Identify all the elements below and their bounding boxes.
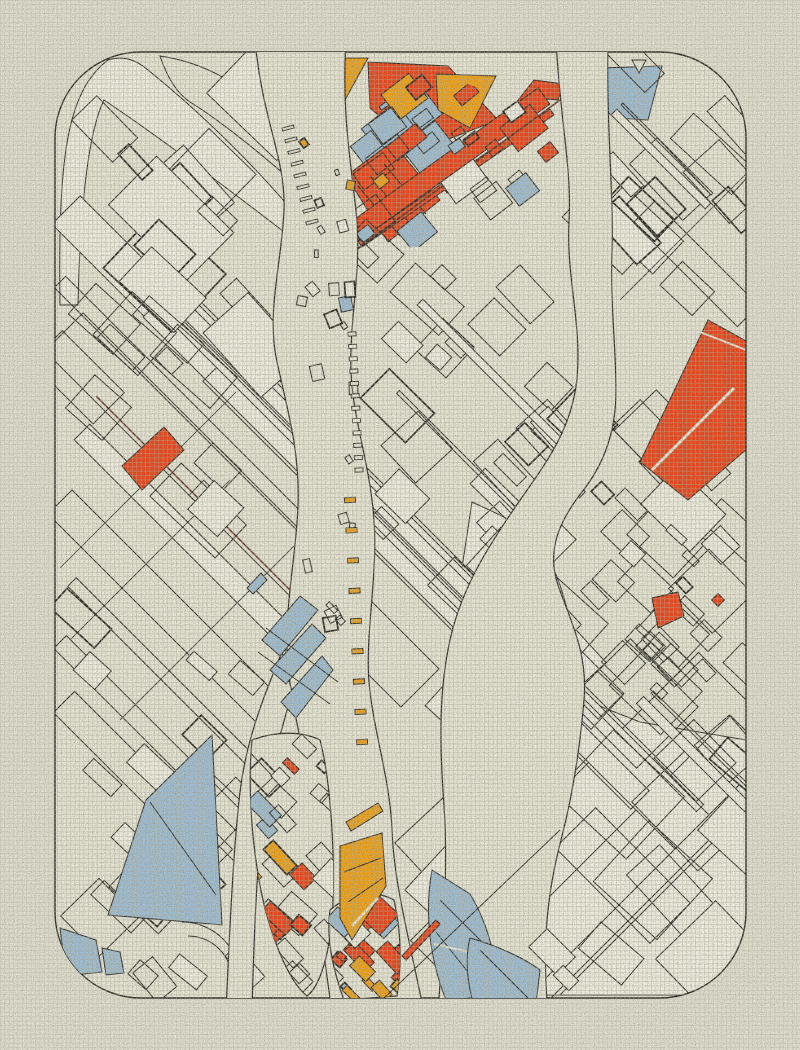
- grain-texture: [0, 0, 800, 1050]
- artwork-canvas: [0, 0, 800, 1050]
- generative-art-print: [0, 0, 800, 1050]
